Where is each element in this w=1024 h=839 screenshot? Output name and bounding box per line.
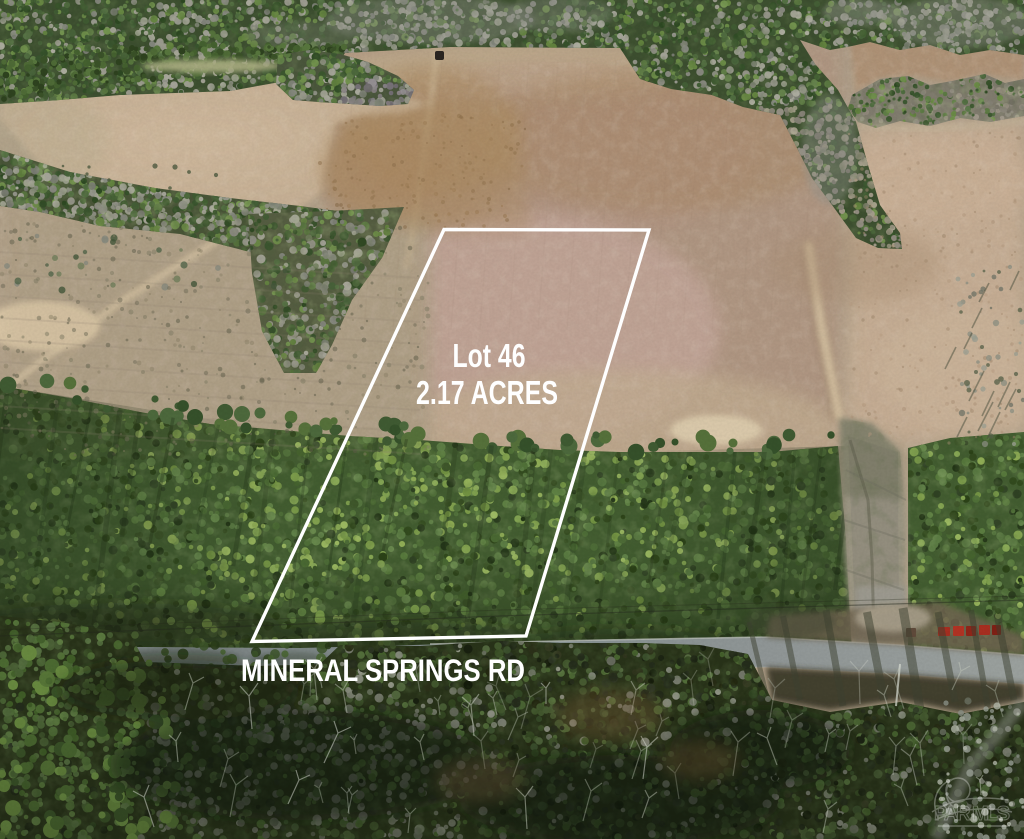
svg-text:Lot 46: Lot 46 [453, 337, 526, 374]
svg-text:MINERAL SPRINGS RD: MINERAL SPRINGS RD [241, 652, 525, 688]
svg-text:2.17 ACRES: 2.17 ACRES [416, 374, 558, 411]
svg-text:PAR MLS: PAR MLS [934, 803, 1010, 825]
